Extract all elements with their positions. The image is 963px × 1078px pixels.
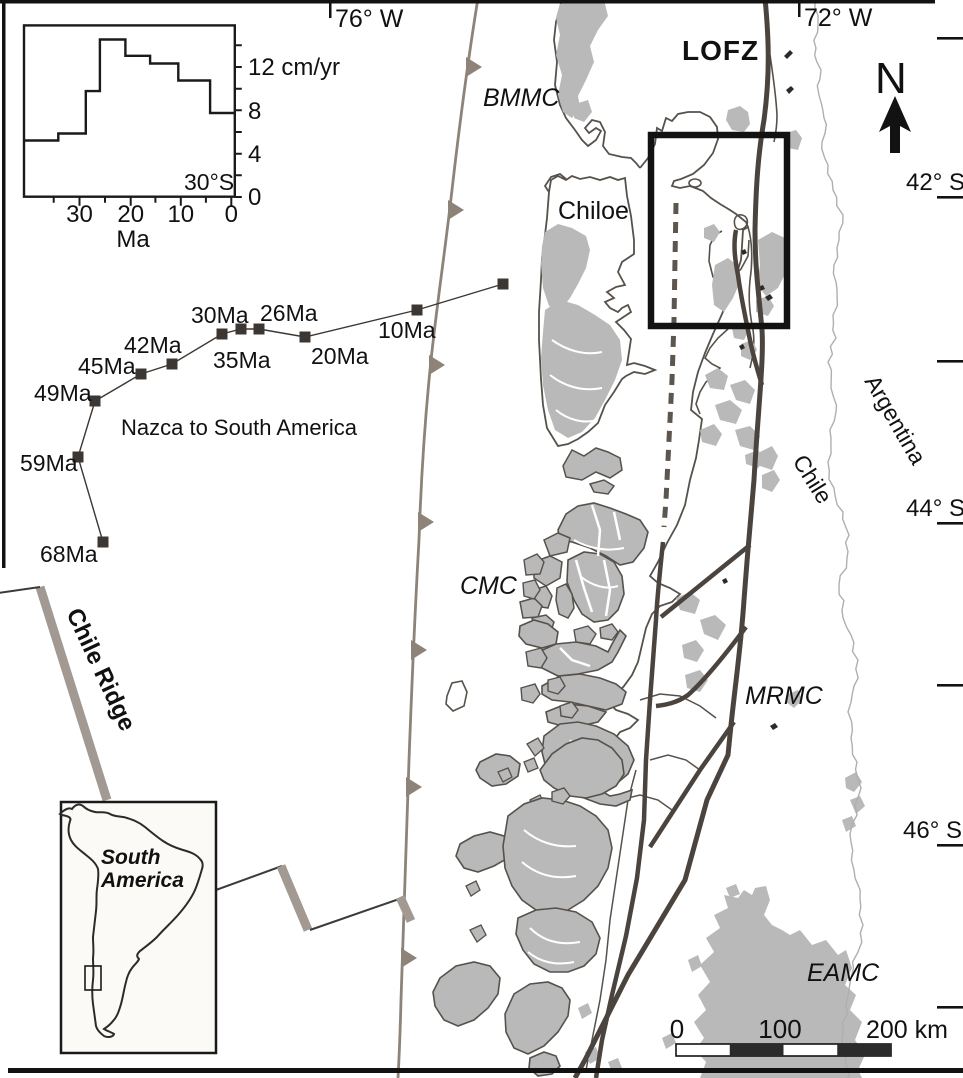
svg-text:72° W: 72° W <box>804 4 873 32</box>
svg-text:35Ma: 35Ma <box>213 347 271 373</box>
svg-text:100: 100 <box>758 1014 801 1044</box>
svg-text:LOFZ: LOFZ <box>682 35 759 66</box>
svg-text:N: N <box>875 54 907 103</box>
svg-text:Chiloe: Chiloe <box>558 197 629 225</box>
svg-text:30: 30 <box>66 201 93 228</box>
svg-text:0: 0 <box>670 1014 684 1044</box>
svg-text:59Ma: 59Ma <box>20 450 78 476</box>
svg-text:BMMC: BMMC <box>483 84 560 112</box>
svg-text:MRMC: MRMC <box>745 682 824 710</box>
svg-text:26Ma: 26Ma <box>260 300 318 326</box>
svg-text:200 km: 200 km <box>866 1016 948 1044</box>
svg-text:12 cm/yr: 12 cm/yr <box>248 54 340 81</box>
svg-text:0: 0 <box>225 201 238 228</box>
svg-text:30°S: 30°S <box>184 169 234 195</box>
svg-text:8: 8 <box>248 98 261 125</box>
svg-text:20Ma: 20Ma <box>311 343 369 369</box>
svg-text:68Ma: 68Ma <box>40 541 98 567</box>
svg-text:30Ma: 30Ma <box>191 302 249 328</box>
svg-text:44° S: 44° S <box>906 495 963 522</box>
svg-text:South: South <box>101 846 160 869</box>
svg-text:42° S: 42° S <box>906 169 963 196</box>
svg-text:49Ma: 49Ma <box>34 380 92 406</box>
svg-text:America: America <box>100 869 184 892</box>
svg-text:46° S: 46° S <box>903 817 962 844</box>
svg-text:76° W: 76° W <box>335 5 404 33</box>
svg-text:20: 20 <box>117 201 144 228</box>
svg-text:10Ma: 10Ma <box>378 317 436 343</box>
svg-text:42Ma: 42Ma <box>124 332 182 358</box>
svg-text:Ma: Ma <box>116 226 150 253</box>
svg-text:CMC: CMC <box>460 572 518 600</box>
svg-text:Nazca to South America: Nazca to South America <box>121 415 358 440</box>
svg-text:0: 0 <box>248 184 261 211</box>
svg-text:10: 10 <box>167 201 194 228</box>
svg-text:EAMC: EAMC <box>807 959 880 987</box>
svg-text:4: 4 <box>248 141 261 168</box>
